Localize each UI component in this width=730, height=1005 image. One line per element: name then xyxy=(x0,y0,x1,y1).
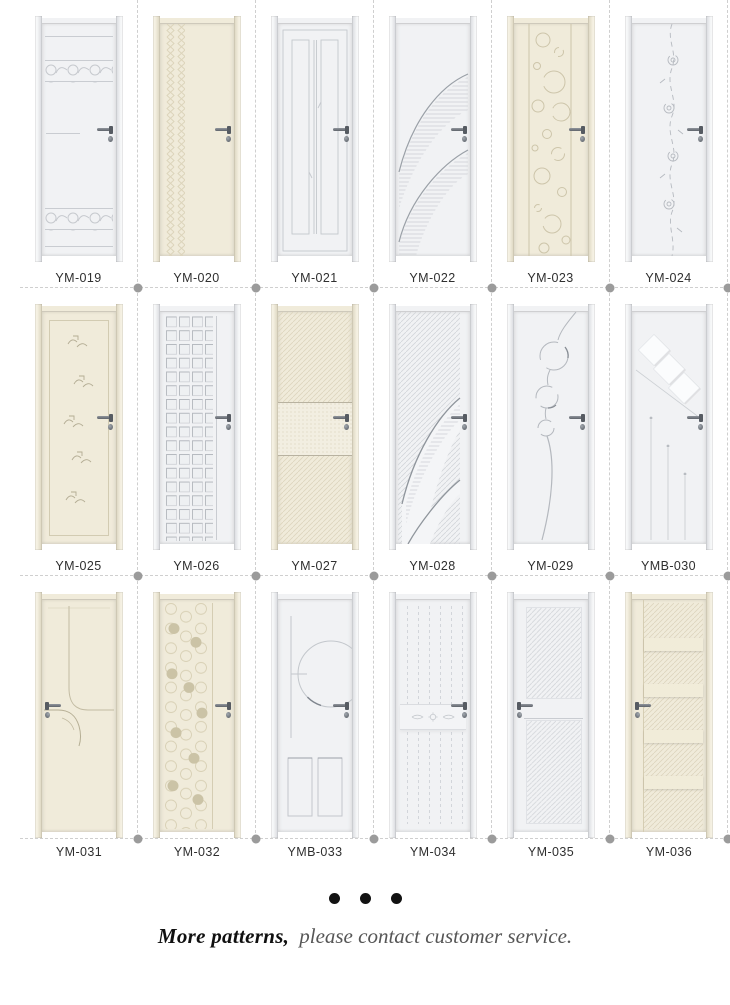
door-frame-left xyxy=(507,304,514,550)
door-model-label: YM-026 xyxy=(173,559,219,573)
door-model-label: YM-034 xyxy=(374,845,492,863)
door-frame-right xyxy=(116,16,123,262)
separator-dot xyxy=(370,835,379,844)
door-frame-right xyxy=(234,304,241,550)
door-handle-icon xyxy=(215,700,233,720)
door-thumbnail-ym-019 xyxy=(35,16,123,262)
door-card: YM-020 xyxy=(138,0,256,287)
door-handle-icon xyxy=(687,412,705,432)
door-thumbnail-ym-024 xyxy=(625,16,713,262)
door-thumbnail-ym-031 xyxy=(35,592,123,838)
door-card xyxy=(138,576,256,838)
door-frame-right xyxy=(352,16,359,262)
door-model-label: YM-032 xyxy=(138,845,256,863)
door-card: YM-024 xyxy=(610,0,728,287)
door-frame-right xyxy=(470,304,477,550)
door-model-label: YM-027 xyxy=(291,559,337,573)
door-card: YM-027 xyxy=(256,288,374,575)
door-card xyxy=(492,576,610,838)
door-model-label: YM-024 xyxy=(645,271,691,285)
door-slab xyxy=(42,600,116,832)
door-model-label: YM-036 xyxy=(610,845,728,863)
door-handle-icon xyxy=(215,412,233,432)
door-frame-right xyxy=(706,16,713,262)
row-separator xyxy=(20,287,728,288)
door-card: YM-022 xyxy=(374,0,492,287)
door-slab xyxy=(632,600,706,832)
door-frame-left xyxy=(153,16,160,262)
row-separator xyxy=(20,575,728,576)
door-handle-icon xyxy=(515,700,533,720)
door-handle-icon xyxy=(215,124,233,144)
door-handle-icon xyxy=(569,124,587,144)
separator-dot xyxy=(134,835,143,844)
ellipsis-dot xyxy=(391,893,402,904)
door-handle-icon xyxy=(451,124,469,144)
separator-dot xyxy=(724,835,730,844)
door-model-label: YM-022 xyxy=(409,271,455,285)
door-thumbnail-ym-029 xyxy=(507,304,595,550)
door-slab xyxy=(632,312,706,544)
door-card: YM-028 xyxy=(374,288,492,575)
door-frame-left xyxy=(625,16,632,262)
door-slab xyxy=(42,24,116,256)
separator-dot xyxy=(488,835,497,844)
separator-dot xyxy=(370,572,379,581)
door-card: YM-019 xyxy=(20,0,138,287)
door-frame-left xyxy=(271,16,278,262)
door-card xyxy=(610,576,728,838)
door-slab xyxy=(396,600,470,832)
door-frame-right xyxy=(706,304,713,550)
door-thumbnail-ymb-030 xyxy=(625,304,713,550)
door-model-label: YM-028 xyxy=(409,559,455,573)
catalog-row-2: YM-025 YM-026 xyxy=(20,288,728,575)
door-frame-left xyxy=(389,16,396,262)
door-model-label: YM-029 xyxy=(527,559,573,573)
door-frame-left xyxy=(153,304,160,550)
door-model-label: YM-031 xyxy=(20,845,138,863)
door-frame-right xyxy=(234,16,241,262)
ellipsis-dot xyxy=(360,893,371,904)
separator-dot xyxy=(134,284,143,293)
door-frame-left xyxy=(389,592,396,838)
door-frame-right xyxy=(234,592,241,838)
door-thumbnail-ym-035 xyxy=(507,592,595,838)
separator-dot xyxy=(134,572,143,581)
door-handle-icon xyxy=(333,700,351,720)
separator-dot xyxy=(251,572,260,581)
catalog-row-1: YM-019 YM-020 xyxy=(20,0,728,287)
door-pattern xyxy=(165,24,185,256)
door-frame-left xyxy=(271,592,278,838)
footer-note-bold: More patterns, xyxy=(158,924,289,948)
door-card xyxy=(20,576,138,838)
door-thumbnail-ym-032 xyxy=(153,592,241,838)
door-handle-icon xyxy=(451,412,469,432)
door-card: YMB-030 xyxy=(610,288,728,575)
door-frame-left xyxy=(153,592,160,838)
door-card: YM-021 xyxy=(256,0,374,287)
door-slab xyxy=(396,24,470,256)
door-frame-right xyxy=(470,592,477,838)
door-thumbnail-ym-025 xyxy=(35,304,123,550)
door-frame-left xyxy=(271,304,278,550)
door-thumbnail-ym-027 xyxy=(271,304,359,550)
door-handle-icon xyxy=(97,412,115,432)
separator-dot xyxy=(724,284,730,293)
door-frame-left xyxy=(625,592,632,838)
door-slab xyxy=(160,312,234,544)
door-card: YM-026 xyxy=(138,288,256,575)
door-frame-left xyxy=(507,592,514,838)
footer-note: More patterns,please contact customer se… xyxy=(0,924,730,949)
separator-dot xyxy=(724,572,730,581)
door-frame-left xyxy=(35,16,42,262)
door-frame-right xyxy=(588,16,595,262)
door-slab xyxy=(160,600,234,832)
door-card: YM-023 xyxy=(492,0,610,287)
separator-dot xyxy=(488,284,497,293)
separator-dot xyxy=(251,284,260,293)
door-handle-icon xyxy=(569,412,587,432)
door-frame-right xyxy=(706,592,713,838)
door-thumbnail-ym-026 xyxy=(153,304,241,550)
door-thumbnail-ym-028 xyxy=(389,304,477,550)
door-card xyxy=(256,576,374,838)
door-thumbnail-ym-023 xyxy=(507,16,595,262)
door-slab xyxy=(514,600,588,832)
door-handle-icon xyxy=(451,700,469,720)
door-thumbnail-ym-034 xyxy=(389,592,477,838)
door-model-label: YMB-030 xyxy=(641,559,696,573)
door-frame-left xyxy=(35,304,42,550)
door-model-label: YMB-033 xyxy=(256,845,374,863)
door-slab xyxy=(160,24,234,256)
row-separator xyxy=(20,838,728,839)
door-handle-icon xyxy=(687,124,705,144)
door-frame-left xyxy=(507,16,514,262)
separator-dot xyxy=(251,835,260,844)
door-frame-right xyxy=(588,304,595,550)
door-handle-icon xyxy=(97,124,115,144)
ellipsis-dot xyxy=(329,893,340,904)
door-frame-right xyxy=(470,16,477,262)
door-model-label: YM-019 xyxy=(55,271,101,285)
door-card: YM-025 xyxy=(20,288,138,575)
door-frame-right xyxy=(116,592,123,838)
separator-dot xyxy=(488,572,497,581)
door-slab xyxy=(514,24,588,256)
door-slab xyxy=(42,312,116,544)
door-frame-right xyxy=(352,304,359,550)
door-model-label: YM-035 xyxy=(492,845,610,863)
door-thumbnail-ym-020 xyxy=(153,16,241,262)
footer-note-muted: please contact customer service. xyxy=(299,924,572,948)
door-thumbnail-ym-036 xyxy=(625,592,713,838)
ellipsis-dots xyxy=(0,893,730,904)
door-slab xyxy=(278,312,352,544)
door-slab xyxy=(514,312,588,544)
door-card: YM-029 xyxy=(492,288,610,575)
door-frame-left xyxy=(389,304,396,550)
separator-dot xyxy=(370,284,379,293)
door-slab xyxy=(632,24,706,256)
door-handle-icon xyxy=(333,124,351,144)
separator-dot xyxy=(605,572,614,581)
door-thumbnail-ymb-033 xyxy=(271,592,359,838)
door-slab xyxy=(278,600,352,832)
door-slab xyxy=(396,312,470,544)
door-thumbnail-ym-021 xyxy=(271,16,359,262)
door-handle-icon xyxy=(333,412,351,432)
door-frame-right xyxy=(352,592,359,838)
door-handle-icon xyxy=(633,700,651,720)
door-handle-icon xyxy=(43,700,61,720)
catalog-row-3 xyxy=(20,576,728,838)
door-card xyxy=(374,576,492,838)
door-frame-left xyxy=(625,304,632,550)
door-slab xyxy=(278,24,352,256)
door-frame-right xyxy=(588,592,595,838)
catalog-grid: YM-019 YM-020 xyxy=(0,0,730,863)
door-frame-left xyxy=(35,592,42,838)
door-model-label: YM-020 xyxy=(173,271,219,285)
door-model-label: YM-025 xyxy=(55,559,101,573)
door-frame-right xyxy=(116,304,123,550)
door-model-label: YM-021 xyxy=(291,271,337,285)
separator-dot xyxy=(605,835,614,844)
door-model-label: YM-023 xyxy=(527,271,573,285)
door-thumbnail-ym-022 xyxy=(389,16,477,262)
separator-dot xyxy=(605,284,614,293)
